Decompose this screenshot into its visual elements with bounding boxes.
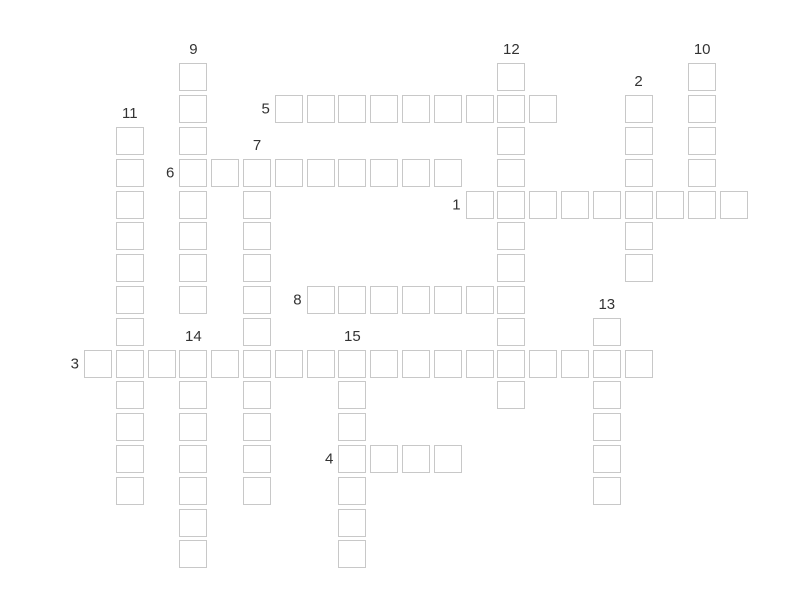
clue-number-label: 14 bbox=[185, 329, 202, 344]
crossword-cell[interactable] bbox=[243, 445, 271, 473]
crossword-cell[interactable] bbox=[466, 350, 494, 378]
crossword-cell[interactable] bbox=[243, 254, 271, 282]
crossword-cell[interactable] bbox=[593, 381, 621, 409]
crossword-cell[interactable] bbox=[529, 350, 557, 378]
crossword-cell[interactable] bbox=[179, 413, 207, 441]
crossword-cell[interactable] bbox=[179, 477, 207, 505]
crossword-grid: 134568279101112131415 bbox=[0, 0, 800, 600]
crossword-cell[interactable] bbox=[593, 413, 621, 441]
crossword-cell[interactable] bbox=[116, 127, 144, 155]
crossword-cell[interactable] bbox=[370, 445, 398, 473]
crossword-cell[interactable] bbox=[179, 286, 207, 314]
crossword-cell[interactable] bbox=[625, 95, 653, 123]
clue-number-label: 2 bbox=[634, 74, 642, 89]
crossword-cell[interactable] bbox=[434, 445, 462, 473]
crossword-cell[interactable] bbox=[179, 350, 207, 378]
crossword-cell[interactable] bbox=[116, 222, 144, 250]
crossword-cell[interactable] bbox=[497, 254, 525, 282]
crossword-cell[interactable] bbox=[338, 413, 366, 441]
crossword-cell[interactable] bbox=[529, 95, 557, 123]
crossword-cell[interactable] bbox=[243, 413, 271, 441]
crossword-cell[interactable] bbox=[179, 63, 207, 91]
crossword-cell[interactable] bbox=[497, 381, 525, 409]
crossword-cell[interactable] bbox=[497, 222, 525, 250]
crossword-cell[interactable] bbox=[275, 350, 303, 378]
crossword-cell[interactable] bbox=[211, 159, 239, 187]
crossword-cell[interactable] bbox=[402, 445, 430, 473]
crossword-cell[interactable] bbox=[243, 159, 271, 187]
crossword-cell[interactable] bbox=[593, 445, 621, 473]
crossword-cell[interactable] bbox=[116, 254, 144, 282]
crossword-cell[interactable] bbox=[402, 350, 430, 378]
crossword-cell[interactable] bbox=[116, 159, 144, 187]
crossword-cell[interactable] bbox=[116, 191, 144, 219]
crossword-cell[interactable] bbox=[179, 191, 207, 219]
crossword-cell[interactable] bbox=[561, 191, 589, 219]
crossword-cell[interactable] bbox=[688, 191, 716, 219]
clue-number-label: 1 bbox=[452, 197, 460, 212]
crossword-cell[interactable] bbox=[370, 95, 398, 123]
crossword-cell[interactable] bbox=[275, 159, 303, 187]
clue-number-label: 5 bbox=[261, 102, 269, 117]
crossword-cell[interactable] bbox=[338, 95, 366, 123]
crossword-cell[interactable] bbox=[116, 318, 144, 346]
crossword-cell[interactable] bbox=[243, 477, 271, 505]
crossword-cell[interactable] bbox=[243, 222, 271, 250]
crossword-cell[interactable] bbox=[497, 191, 525, 219]
crossword-cell[interactable] bbox=[497, 63, 525, 91]
clue-number-label: 3 bbox=[71, 356, 79, 371]
clue-number-label: 12 bbox=[503, 42, 520, 57]
clue-number-label: 8 bbox=[293, 292, 301, 307]
crossword-cell[interactable] bbox=[497, 350, 525, 378]
crossword-cell[interactable] bbox=[179, 95, 207, 123]
crossword-cell[interactable] bbox=[434, 159, 462, 187]
crossword-cell[interactable] bbox=[211, 350, 239, 378]
crossword-cell[interactable] bbox=[179, 540, 207, 568]
clue-number-label: 6 bbox=[166, 165, 174, 180]
crossword-cell[interactable] bbox=[497, 159, 525, 187]
clue-number-label: 9 bbox=[189, 42, 197, 57]
crossword-cell[interactable] bbox=[370, 286, 398, 314]
crossword-cell[interactable] bbox=[466, 191, 494, 219]
crossword-cell[interactable] bbox=[497, 286, 525, 314]
crossword-cell[interactable] bbox=[338, 159, 366, 187]
crossword-cell[interactable] bbox=[338, 540, 366, 568]
crossword-cell[interactable] bbox=[656, 191, 684, 219]
crossword-cell[interactable] bbox=[148, 350, 176, 378]
clue-number-label: 10 bbox=[694, 42, 711, 57]
crossword-cell[interactable] bbox=[243, 191, 271, 219]
crossword-cell[interactable] bbox=[434, 95, 462, 123]
crossword-cell[interactable] bbox=[593, 477, 621, 505]
crossword-cell[interactable] bbox=[593, 318, 621, 346]
crossword-cell[interactable] bbox=[688, 63, 716, 91]
crossword-cell[interactable] bbox=[434, 286, 462, 314]
crossword-cell[interactable] bbox=[338, 381, 366, 409]
clue-number-label: 7 bbox=[253, 138, 261, 153]
crossword-cell[interactable] bbox=[116, 286, 144, 314]
crossword-cell[interactable] bbox=[179, 222, 207, 250]
crossword-cell[interactable] bbox=[402, 159, 430, 187]
crossword-cell[interactable] bbox=[688, 95, 716, 123]
crossword-cell[interactable] bbox=[370, 350, 398, 378]
crossword-cell[interactable] bbox=[116, 381, 144, 409]
clue-number-label: 11 bbox=[122, 106, 138, 121]
crossword-cell[interactable] bbox=[561, 350, 589, 378]
clue-number-label: 13 bbox=[598, 297, 615, 312]
crossword-cell[interactable] bbox=[497, 318, 525, 346]
crossword-cell[interactable] bbox=[497, 127, 525, 155]
crossword-cell[interactable] bbox=[434, 350, 462, 378]
crossword-cell[interactable] bbox=[338, 286, 366, 314]
crossword-cell[interactable] bbox=[179, 445, 207, 473]
crossword-cell[interactable] bbox=[243, 381, 271, 409]
crossword-cell[interactable] bbox=[338, 445, 366, 473]
crossword-cell[interactable] bbox=[402, 95, 430, 123]
crossword-cell[interactable] bbox=[625, 191, 653, 219]
crossword-cell[interactable] bbox=[179, 159, 207, 187]
crossword-cell[interactable] bbox=[466, 95, 494, 123]
crossword-cell[interactable] bbox=[688, 159, 716, 187]
crossword-cell[interactable] bbox=[116, 445, 144, 473]
crossword-cell[interactable] bbox=[179, 254, 207, 282]
crossword-cell[interactable] bbox=[307, 159, 335, 187]
crossword-cell[interactable] bbox=[625, 254, 653, 282]
crossword-cell[interactable] bbox=[179, 127, 207, 155]
crossword-cell[interactable] bbox=[688, 127, 716, 155]
crossword-cell[interactable] bbox=[338, 477, 366, 505]
crossword-cell[interactable] bbox=[338, 509, 366, 537]
clue-number-label: 15 bbox=[344, 329, 361, 344]
crossword-cell[interactable] bbox=[402, 286, 430, 314]
crossword-cell[interactable] bbox=[116, 477, 144, 505]
crossword-cell[interactable] bbox=[720, 191, 748, 219]
crossword-cell[interactable] bbox=[370, 159, 398, 187]
clue-number-label: 4 bbox=[325, 451, 333, 466]
crossword-cell[interactable] bbox=[243, 286, 271, 314]
crossword-cell[interactable] bbox=[338, 350, 366, 378]
crossword-cell[interactable] bbox=[179, 381, 207, 409]
crossword-cell[interactable] bbox=[307, 350, 335, 378]
crossword-cell[interactable] bbox=[84, 350, 112, 378]
crossword-cell[interactable] bbox=[116, 413, 144, 441]
crossword-cell[interactable] bbox=[243, 318, 271, 346]
crossword-cell[interactable] bbox=[529, 191, 557, 219]
crossword-cell[interactable] bbox=[116, 350, 144, 378]
crossword-cell[interactable] bbox=[625, 222, 653, 250]
crossword-cell[interactable] bbox=[307, 286, 335, 314]
crossword-cell[interactable] bbox=[593, 191, 621, 219]
crossword-cell[interactable] bbox=[275, 95, 303, 123]
crossword-cell[interactable] bbox=[179, 509, 207, 537]
crossword-cell[interactable] bbox=[593, 350, 621, 378]
crossword-cell[interactable] bbox=[497, 95, 525, 123]
crossword-cell[interactable] bbox=[625, 350, 653, 378]
crossword-cell[interactable] bbox=[625, 127, 653, 155]
crossword-cell[interactable] bbox=[625, 159, 653, 187]
crossword-cell[interactable] bbox=[466, 286, 494, 314]
crossword-cell[interactable] bbox=[243, 350, 271, 378]
crossword-cell[interactable] bbox=[307, 95, 335, 123]
